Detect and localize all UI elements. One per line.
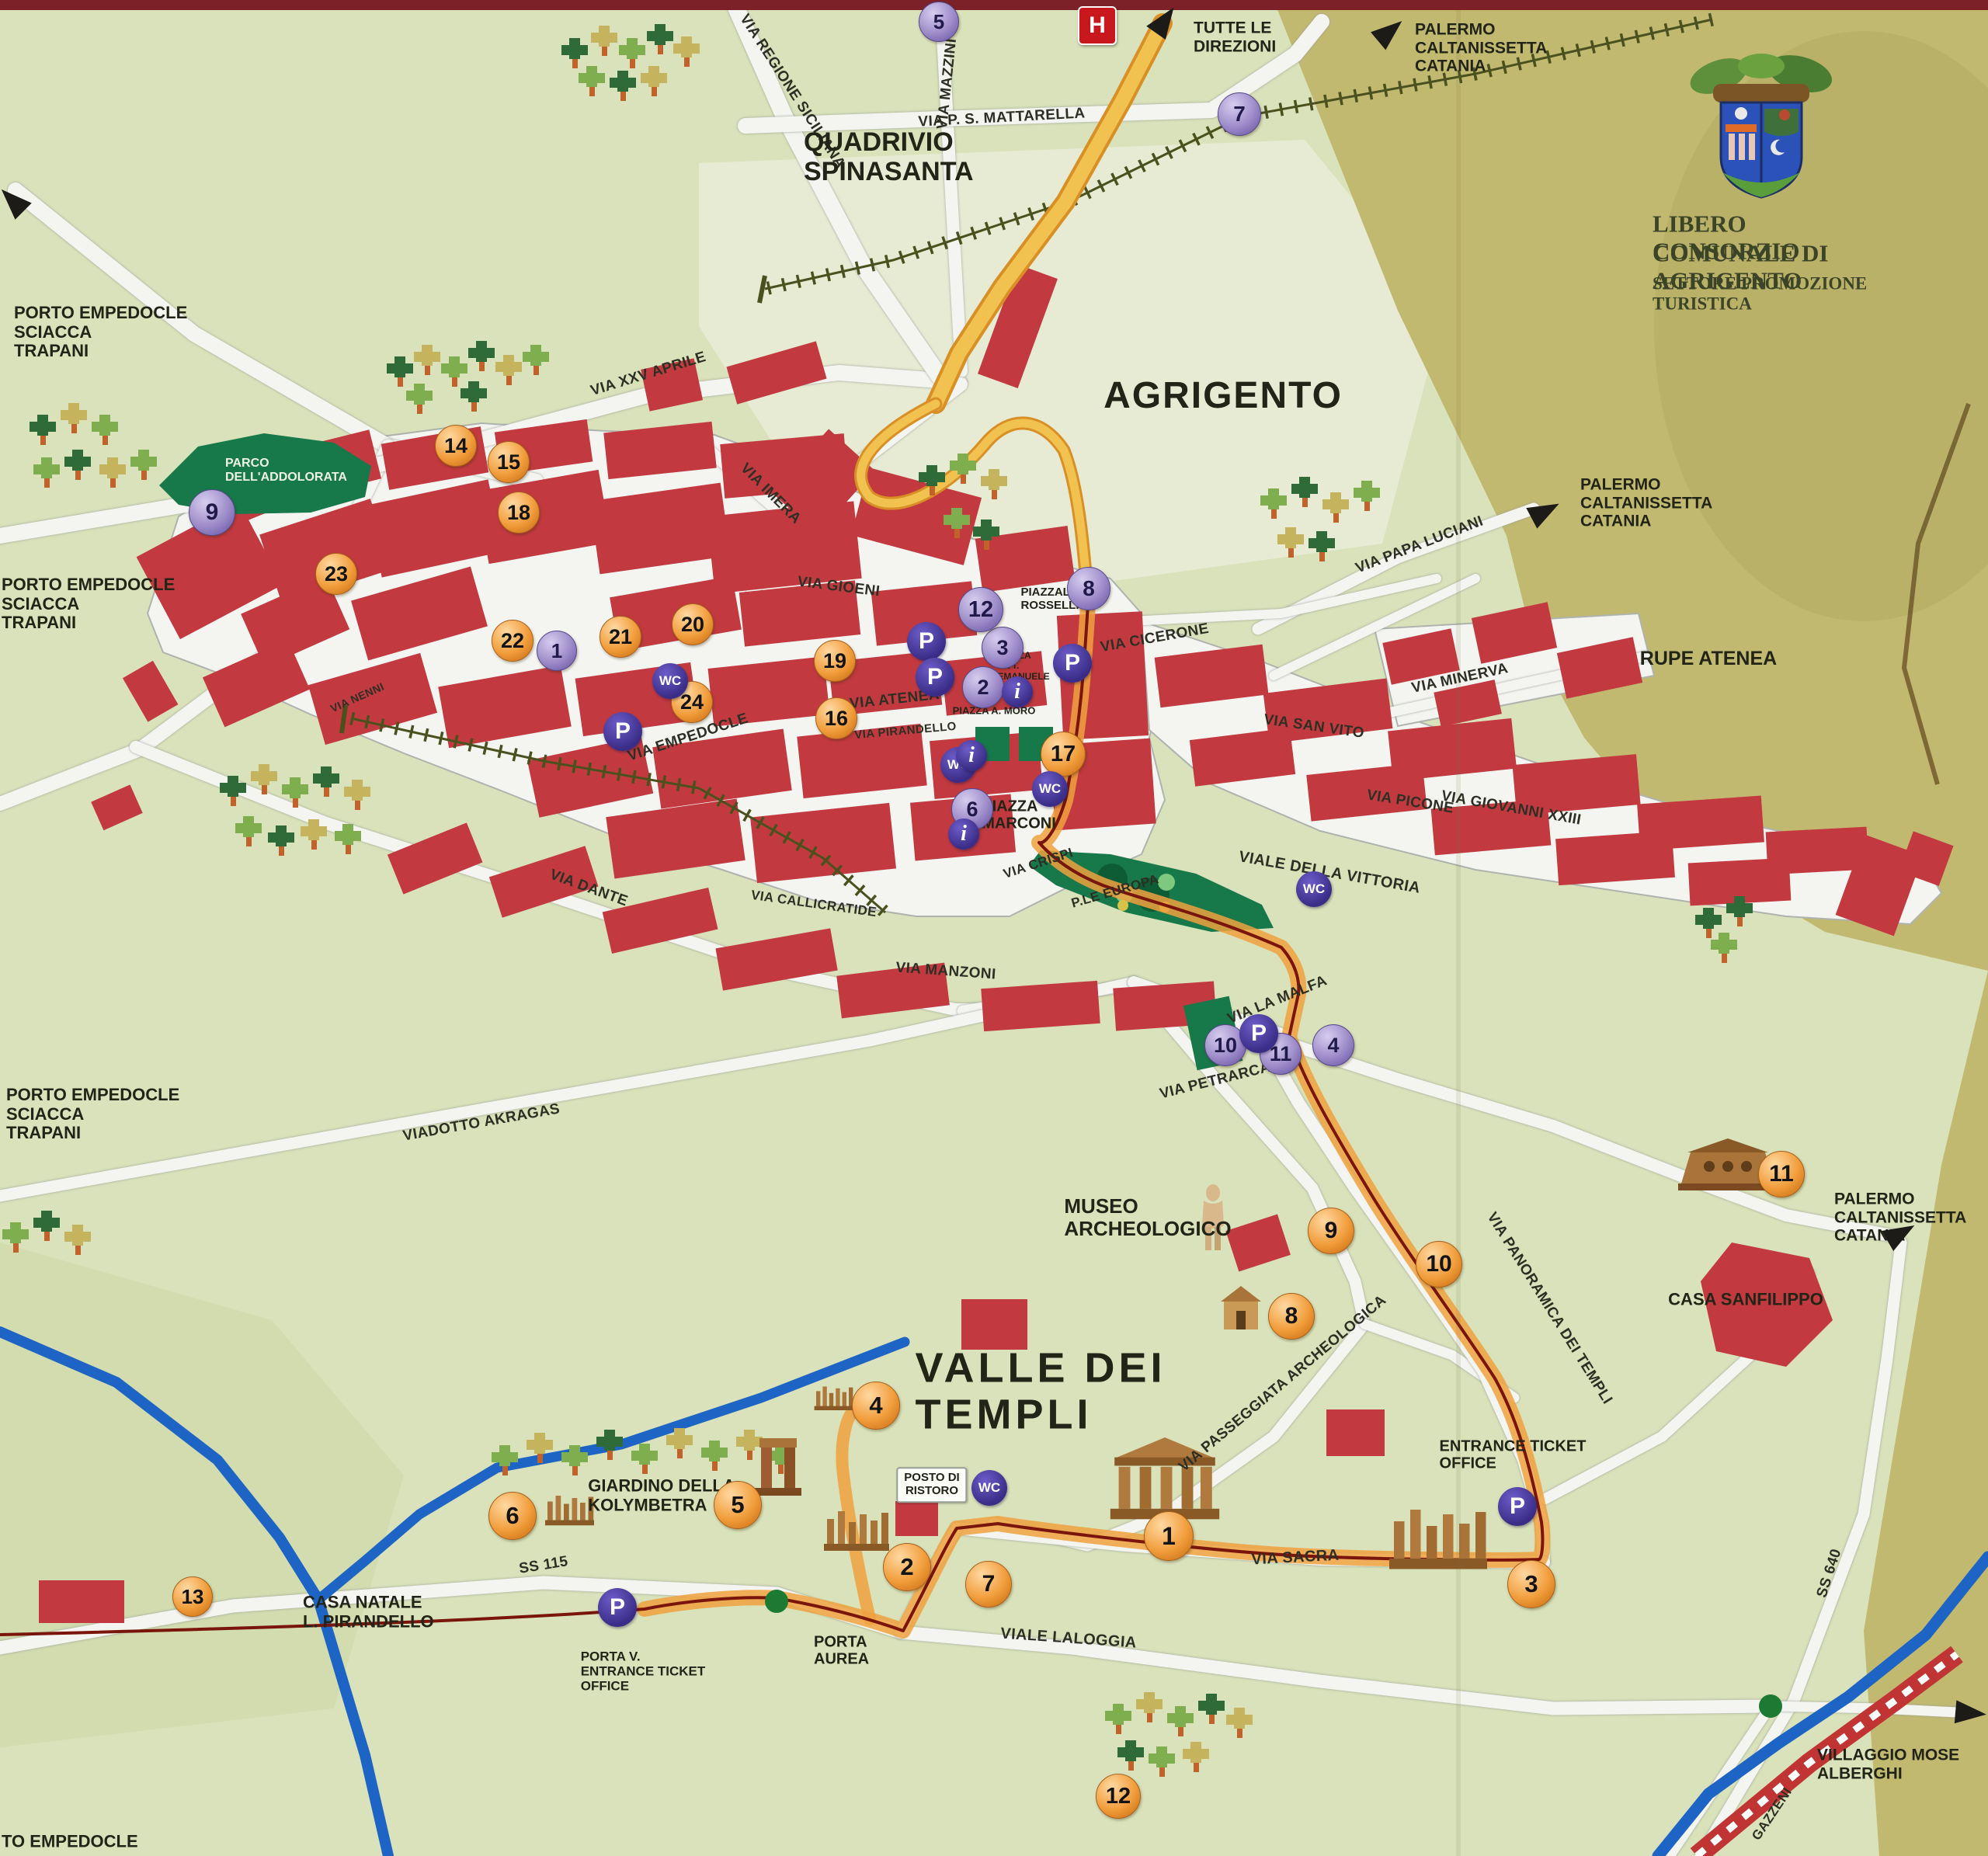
info-icon: i — [956, 740, 987, 771]
marker-orange-17: 17 — [1041, 732, 1086, 777]
marker-orange-13: 13 — [172, 1576, 213, 1617]
direction-arrow-icon — [1955, 1700, 1987, 1726]
parking-icon: P — [1239, 1014, 1278, 1053]
marker-orange-6: 6 — [488, 1492, 537, 1540]
marker-purple-9: 9 — [189, 489, 235, 536]
place-label: PORTA AUREA — [814, 1634, 869, 1669]
marker-purple-3: 3 — [982, 627, 1024, 669]
marker-orange-3: 3 — [1507, 1560, 1555, 1608]
marker-orange-16: 16 — [815, 697, 857, 739]
marker-orange-23: 23 — [315, 553, 357, 595]
place-label: VALLE DEI TEMPLI — [915, 1345, 1166, 1439]
place-label: TO EMPEDOCLE — [2, 1833, 138, 1852]
place-label: PARCO DELL'ADDOLORATA — [225, 457, 347, 485]
place-label: PORTO EMPEDOCLE SCIACCA TRAPANI — [2, 575, 175, 633]
marker-orange-20: 20 — [672, 603, 714, 645]
marker-orange-4: 4 — [852, 1382, 900, 1430]
marker-orange-1: 1 — [1144, 1511, 1194, 1561]
marker-orange-22: 22 — [492, 620, 533, 662]
info-icon: i — [948, 819, 979, 850]
place-label: CASA SANFILIPPO — [1668, 1291, 1823, 1310]
marker-orange-15: 15 — [488, 441, 530, 483]
place-label: ENTRANCE TICKET OFFICE — [1440, 1438, 1587, 1473]
marker-purple-8: 8 — [1067, 567, 1110, 610]
place-label: PORTO EMPEDOCLE SCIACCA TRAPANI — [6, 1086, 179, 1143]
marker-orange-11: 11 — [1758, 1151, 1805, 1197]
place-label: PIAZZA A. MORO — [953, 706, 1036, 718]
place-label: VILLAGGIO MOSE ALBERGHI — [1817, 1746, 1959, 1782]
marker-orange-10: 10 — [1416, 1241, 1462, 1288]
marker-orange-12: 12 — [1096, 1774, 1141, 1819]
hospital-icon: H — [1078, 6, 1117, 45]
wc-icon: WC — [971, 1470, 1007, 1506]
place-label: CASA NATALE L. PIRANDELLO — [303, 1593, 434, 1631]
place-label: PALERMO CALTANISSETTA CATANIA — [1415, 21, 1547, 76]
place-label: GIARDINO DELLA KOLYMBETRA — [588, 1476, 735, 1514]
marker-orange-9: 9 — [1308, 1208, 1354, 1254]
marker-orange-7: 7 — [965, 1561, 1012, 1607]
marker-purple-7: 7 — [1218, 92, 1261, 136]
place-label: SETTORE PROMOZIONE TURISTICA — [1653, 273, 1876, 314]
place-label: TUTTE LE DIREZIONI — [1194, 19, 1276, 55]
place-label: AGRIGENTO — [1103, 375, 1343, 417]
marker-purple-4: 4 — [1312, 1024, 1354, 1066]
parking-icon: P — [916, 658, 954, 697]
place-label: POSTO DI RISTORO — [896, 1467, 967, 1503]
wc-icon: WC — [1032, 771, 1068, 807]
parking-icon: P — [598, 1588, 637, 1627]
wc-icon: WC — [1296, 871, 1332, 907]
tourist-map-agrigento: VIA REGIONE SICILIANAVIA MAZZINIVIA P. S… — [0, 0, 1988, 1856]
marker-orange-8: 8 — [1268, 1293, 1315, 1340]
marker-orange-18: 18 — [498, 492, 540, 534]
place-label: QUADRIVIO SPINASANTA — [804, 127, 974, 186]
marker-orange-19: 19 — [814, 640, 856, 682]
marker-orange-14: 14 — [435, 425, 477, 467]
parking-icon: P — [1498, 1487, 1537, 1526]
place-label: PALERMO CALTANISSETTA CATANIA — [1580, 476, 1712, 531]
parking-icon: P — [907, 622, 946, 661]
place-label: PORTO EMPEDOCLE SCIACCA TRAPANI — [14, 304, 187, 361]
wc-icon: WC — [652, 663, 688, 699]
marker-orange-2: 2 — [883, 1543, 931, 1591]
junction-dot — [1759, 1694, 1782, 1718]
info-icon: i — [1002, 676, 1033, 707]
marker-purple-12: 12 — [958, 587, 1003, 632]
place-label: PORTA V. ENTRANCE TICKET OFFICE — [581, 1649, 706, 1693]
marker-purple-2: 2 — [962, 666, 1004, 708]
marker-purple-1: 1 — [537, 631, 577, 671]
marker-purple-5: 5 — [919, 2, 959, 42]
place-label: RUPE ATENEA — [1640, 648, 1777, 669]
place-label: MUSEO ARCHEOLOGICO — [1064, 1195, 1231, 1240]
marker-orange-21: 21 — [600, 616, 641, 658]
junction-dot — [765, 1590, 788, 1613]
parking-icon: P — [1053, 644, 1092, 683]
parking-icon: P — [603, 712, 642, 751]
marker-orange-5: 5 — [714, 1481, 762, 1529]
